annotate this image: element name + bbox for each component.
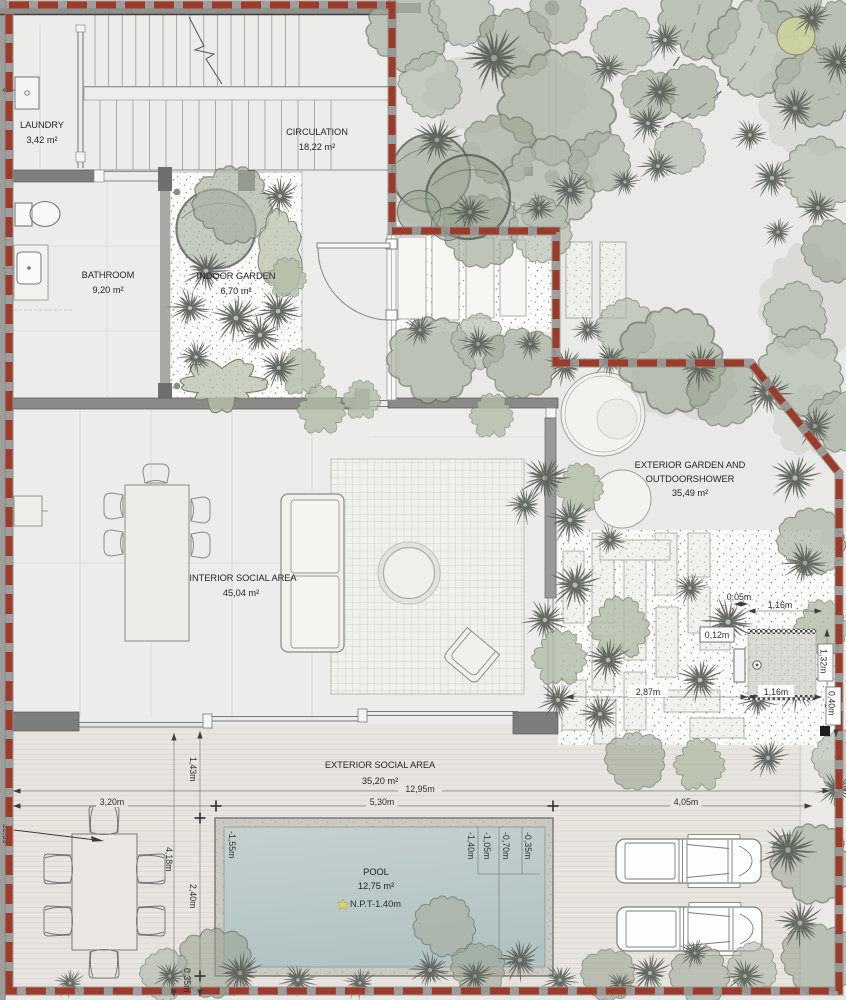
svg-text:2,87m: 2,87m (636, 687, 660, 697)
svg-text:OUTDOORSHOWER: OUTDOORSHOWER (646, 474, 735, 484)
svg-text:4,05m: 4,05m (674, 797, 698, 807)
svg-text:-1,55m: -1,55m (227, 831, 237, 858)
svg-text:9,20 m²: 9,20 m² (92, 285, 123, 295)
svg-text:-0,35m: -0,35m (523, 832, 533, 859)
svg-text:0,40m: 0,40m (827, 691, 837, 715)
svg-text:INDOOR GARDEN: INDOOR GARDEN (197, 271, 276, 281)
svg-text:5,30m: 5,30m (370, 797, 394, 807)
svg-text:EXTERIOR GARDEN AND: EXTERIOR GARDEN AND (635, 460, 746, 470)
svg-text:6,70 m²: 6,70 m² (220, 286, 251, 296)
svg-text:BATHROOM: BATHROOM (82, 270, 135, 280)
svg-text:POOL: POOL (363, 867, 389, 877)
svg-text:2,40m: 2,40m (188, 884, 198, 908)
svg-text:INTERIOR SOCIAL AREA: INTERIOR SOCIAL AREA (189, 573, 297, 583)
svg-text:LAUNDRY: LAUNDRY (20, 120, 64, 130)
svg-text:35,20 m²: 35,20 m² (362, 776, 398, 786)
svg-text:45,04 m²: 45,04 m² (223, 588, 259, 598)
svg-text:1,43m: 1,43m (188, 757, 198, 781)
svg-text:1,16m: 1,16m (764, 687, 788, 697)
svg-text:-1,40m: -1,40m (466, 832, 476, 859)
svg-text:CIRCULATION: CIRCULATION (286, 127, 348, 137)
svg-text:1,32m: 1,32m (819, 649, 829, 673)
svg-text:0,12m: 0,12m (705, 630, 729, 640)
svg-text:0,05m: 0,05m (727, 592, 751, 602)
svg-text:12,95m: 12,95m (405, 784, 434, 794)
svg-text:18,22 m²: 18,22 m² (299, 142, 335, 152)
svg-text:4,18m: 4,18m (164, 847, 174, 871)
svg-text:0,35m: 0,35m (182, 968, 192, 992)
svg-text:EXTERIOR SOCIAL AREA: EXTERIOR SOCIAL AREA (325, 760, 436, 770)
svg-text:35,49 m²: 35,49 m² (672, 488, 708, 498)
svg-text:12,75 m²: 12,75 m² (358, 881, 394, 891)
svg-text:3,20m: 3,20m (100, 797, 124, 807)
svg-text:1,16m: 1,16m (768, 600, 792, 610)
svg-text:-1,05m: -1,05m (482, 832, 492, 859)
svg-text:-0,70m: -0,70m (501, 832, 511, 859)
svg-text:N.P.T-1.40m: N.P.T-1.40m (350, 899, 401, 909)
svg-text:3,42 m²: 3,42 m² (26, 135, 57, 145)
